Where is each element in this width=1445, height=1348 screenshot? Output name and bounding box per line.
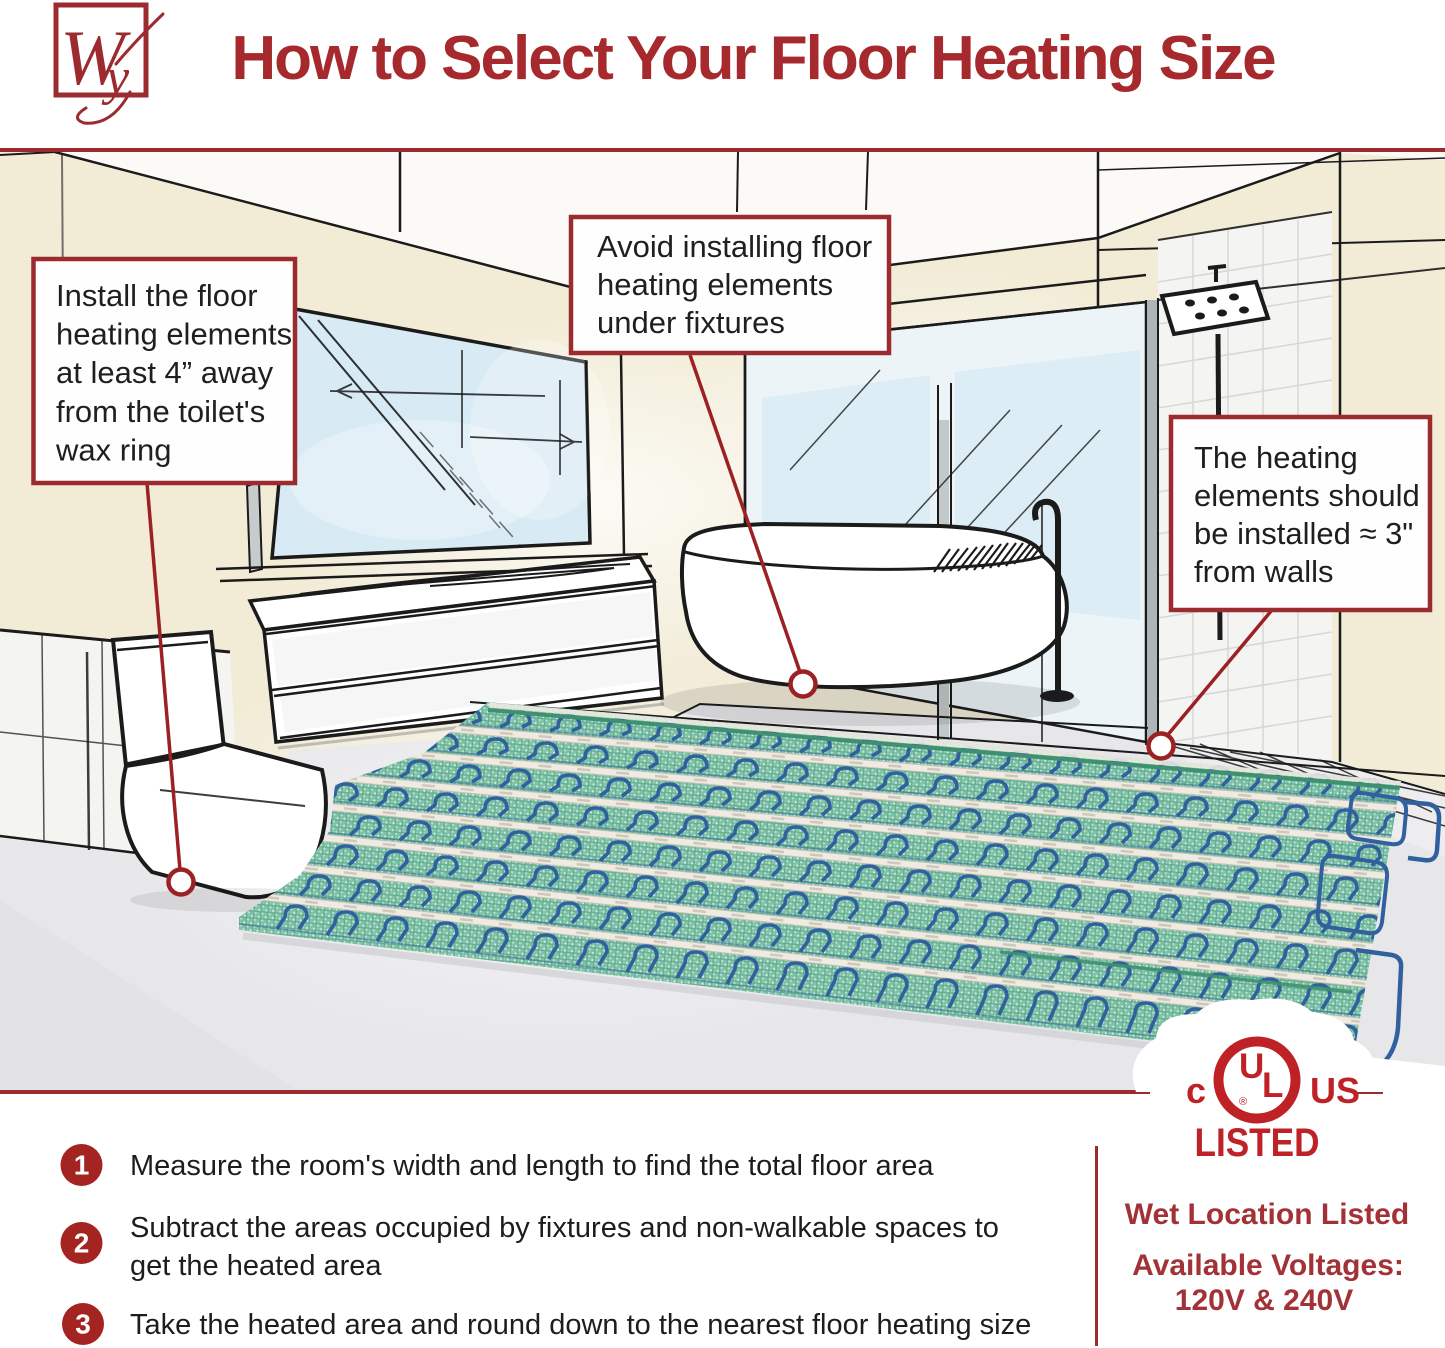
svg-text:wax ring: wax ring (55, 432, 171, 467)
svg-text:Available Voltages:: Available Voltages: (1132, 1249, 1404, 1282)
svg-text:Avoid installing floor: Avoid installing floor (597, 229, 872, 264)
svg-text:L: L (1262, 1066, 1283, 1105)
svg-text:under fixtures: under fixtures (597, 305, 785, 340)
svg-text:LISTED: LISTED (1195, 1120, 1320, 1165)
svg-text:get the heated area: get the heated area (130, 1250, 382, 1282)
svg-text:from the toilet's: from the toilet's (56, 394, 265, 429)
svg-text:Subtract the areas occupied by: Subtract the areas occupied by fixtures … (130, 1212, 999, 1244)
svg-text:at least 4” away: at least 4” away (56, 355, 274, 390)
svg-text:be installed ≈ 3": be installed ≈ 3" (1194, 516, 1413, 551)
svg-text:120V & 240V: 120V & 240V (1175, 1284, 1353, 1317)
svg-text:How to Select Your Floor Heati: How to Select Your Floor Heating Size (231, 24, 1275, 93)
svg-text:U: U (1239, 1047, 1264, 1086)
svg-text:1: 1 (74, 1150, 90, 1181)
svg-text:from walls: from walls (1194, 554, 1334, 589)
svg-text:Wet Location Listed: Wet Location Listed (1125, 1198, 1409, 1231)
svg-text:heating elements: heating elements (56, 317, 292, 352)
svg-text:The heating: The heating (1194, 440, 1358, 475)
svg-text:®: ® (1239, 1096, 1247, 1108)
svg-text:3: 3 (75, 1309, 91, 1340)
svg-text:Measure the room's width and l: Measure the room's width and length to f… (130, 1150, 934, 1182)
svg-text:Take the heated area and round: Take the heated area and round down to t… (130, 1309, 1031, 1341)
svg-text:US: US (1310, 1070, 1360, 1111)
svg-text:heating elements: heating elements (597, 267, 833, 302)
svg-text:c: c (1186, 1070, 1206, 1111)
svg-text:elements should: elements should (1194, 478, 1420, 513)
svg-text:Install the floor: Install the floor (56, 278, 258, 313)
svg-text:2: 2 (74, 1228, 90, 1259)
